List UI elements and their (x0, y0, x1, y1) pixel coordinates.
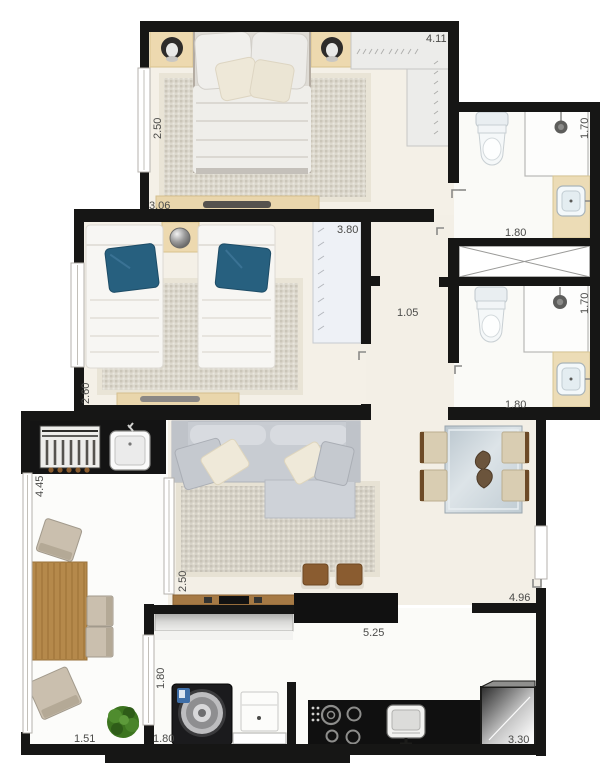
svg-text:1.80: 1.80 (155, 668, 167, 689)
svg-text:2.60: 2.60 (80, 383, 92, 404)
svg-text:3.30: 3.30 (508, 734, 529, 746)
svg-text:4.11: 4.11 (426, 33, 447, 45)
svg-text:2.50: 2.50 (152, 118, 164, 139)
svg-text:1.05: 1.05 (397, 307, 418, 319)
svg-text:1.51: 1.51 (74, 733, 95, 745)
svg-text:1.80: 1.80 (153, 733, 174, 745)
svg-text:4.45: 4.45 (34, 476, 46, 497)
svg-text:5.25: 5.25 (363, 627, 384, 639)
svg-text:3.80: 3.80 (337, 224, 358, 236)
svg-text:3.06: 3.06 (149, 200, 170, 212)
svg-text:1.70: 1.70 (579, 293, 591, 314)
svg-text:1.80: 1.80 (505, 227, 526, 239)
svg-text:1.80: 1.80 (505, 399, 526, 411)
svg-text:4.96: 4.96 (509, 592, 530, 604)
svg-text:2.50: 2.50 (177, 571, 189, 592)
svg-text:1.70: 1.70 (579, 118, 591, 139)
